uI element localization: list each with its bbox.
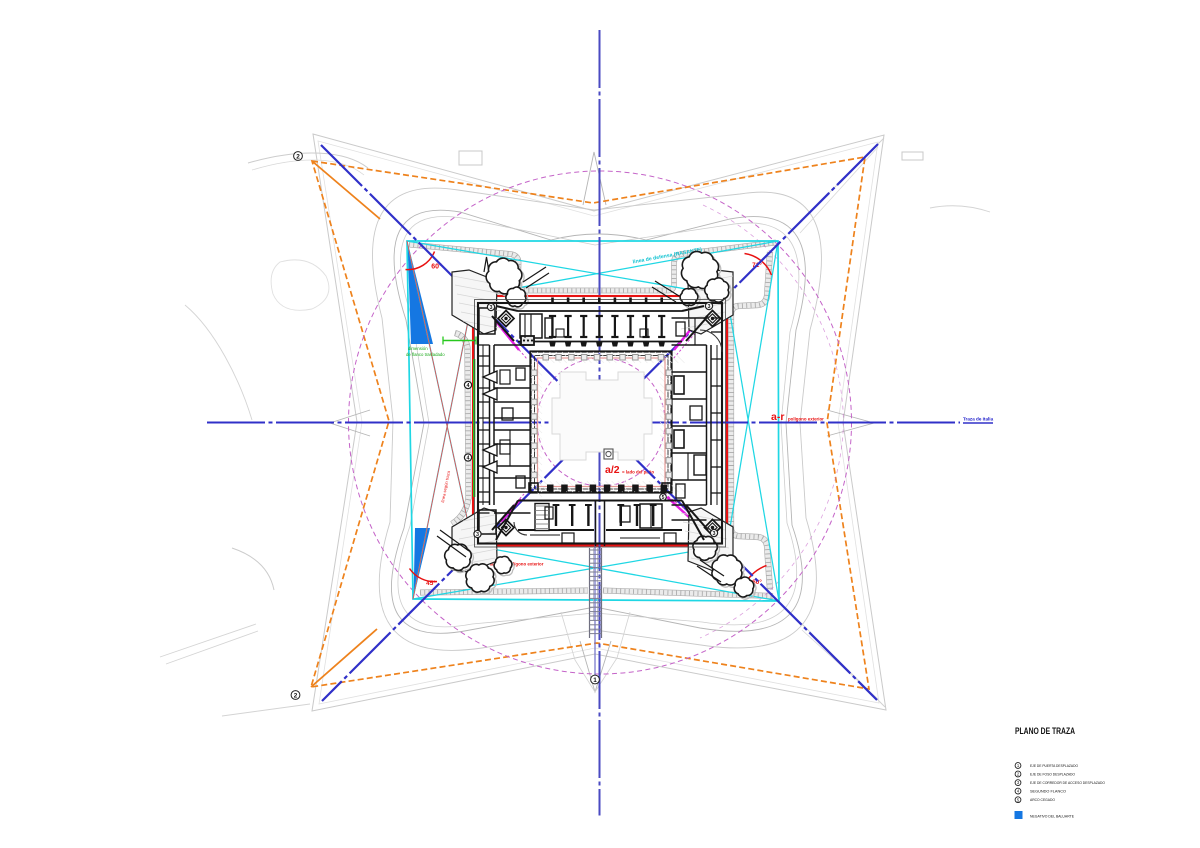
svg-text:45°: 45° xyxy=(426,579,436,587)
svg-text:EJE DE PUERTA DESPLAZADO: EJE DE PUERTA DESPLAZADO xyxy=(1030,763,1078,768)
svg-text:ARCO CEGADO: ARCO CEGADO xyxy=(1030,797,1055,802)
svg-text:3: 3 xyxy=(476,532,479,538)
svg-text:SEGUNDO FLANCO: SEGUNDO FLANCO xyxy=(1030,789,1066,794)
svg-text:3: 3 xyxy=(708,304,711,310)
svg-text:3: 3 xyxy=(713,531,716,537)
svg-text:1: 1 xyxy=(593,677,597,684)
svg-text:4: 4 xyxy=(467,383,470,389)
svg-text:2: 2 xyxy=(296,153,300,160)
svg-text:de flanco trasladado: de flanco trasladado xyxy=(406,352,445,357)
svg-text:a-r: a-r xyxy=(771,411,784,423)
svg-text:3: 3 xyxy=(490,305,493,311)
svg-text:PLANO DE TRAZA: PLANO DE TRAZA xyxy=(1015,726,1075,736)
svg-text:NEGATIVO DEL BALUARTE: NEGATIVO DEL BALUARTE xyxy=(1030,814,1074,819)
svg-text:dimensión: dimensión xyxy=(408,346,428,351)
svg-text:4: 4 xyxy=(467,455,470,461)
svg-text:Traza de Italia: Traza de Italia xyxy=(963,417,994,422)
svg-text:polígono exterior: polígono exterior xyxy=(788,417,824,422)
svg-text:EJE DE CORREDOR DE ACCESO DESP: EJE DE CORREDOR DE ACCESO DESPLAZADO xyxy=(1030,780,1105,785)
svg-text:EJE DE FOSO DESPLAZADO: EJE DE FOSO DESPLAZADO xyxy=(1030,771,1075,776)
svg-text:a/2: a/2 xyxy=(605,464,620,476)
svg-text:2: 2 xyxy=(294,692,298,699)
svg-text:5: 5 xyxy=(662,495,665,501)
